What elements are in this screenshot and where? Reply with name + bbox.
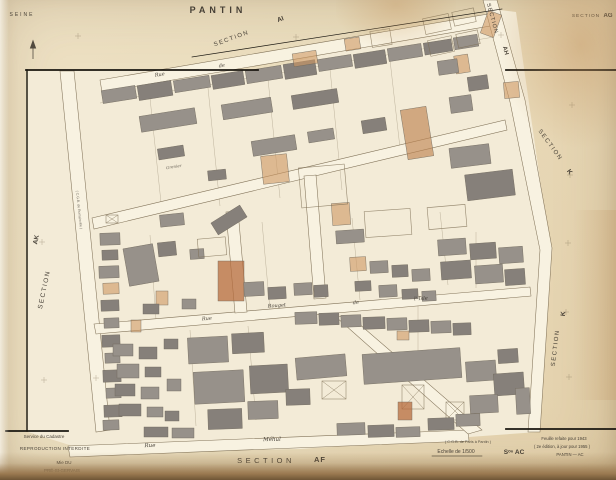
street-rouget-word-3: de [353, 300, 360, 306]
section-ag-code: AG [604, 13, 613, 19]
street-rouget-word-1: Rue [201, 316, 212, 323]
building [147, 407, 163, 417]
building [143, 304, 159, 314]
building [295, 312, 317, 325]
building [117, 364, 139, 378]
building [187, 336, 228, 364]
building [104, 318, 119, 329]
building [119, 404, 141, 416]
building [164, 339, 178, 349]
building [392, 265, 409, 278]
building [319, 313, 339, 326]
street-mehul-word-1: Rue [143, 443, 156, 449]
section-ai-code: AI [276, 15, 285, 24]
building [103, 420, 119, 431]
building [102, 250, 118, 261]
building [437, 238, 466, 256]
building [248, 400, 279, 419]
adjacent-commune-2: PRÉ-St-GERVAIS [44, 467, 80, 473]
section-ac-ref: Sᵒⁿ AC [504, 449, 525, 456]
building [398, 402, 412, 420]
building [190, 249, 205, 260]
building [409, 320, 429, 333]
section-ag-label: SECTION [572, 13, 600, 19]
cadastre-service-note: Service du Cadastre [24, 434, 65, 439]
building [453, 323, 471, 336]
building [344, 37, 361, 51]
title: PANTIN [190, 5, 247, 15]
building [261, 154, 290, 185]
street-mehul-word-2: Méhul [262, 436, 281, 443]
building [208, 408, 243, 429]
building [193, 370, 245, 405]
building [286, 389, 311, 406]
building [368, 425, 394, 438]
building [100, 233, 120, 246]
street-top-word-2: de [218, 63, 225, 70]
building [515, 388, 530, 415]
section-ai-label: SECTION [213, 30, 250, 48]
building [115, 384, 135, 396]
building [314, 285, 329, 298]
building [355, 281, 372, 292]
building [139, 347, 157, 359]
building [498, 246, 523, 264]
building [172, 428, 194, 438]
cadastral-map-sheet: SEINEPANTINSECTIONAGSECTIONAISECTIONAHSE… [0, 0, 616, 480]
north-arrow-head [31, 41, 36, 48]
reproduction-note: REPRODUCTION INTERDITE [20, 446, 90, 451]
building [123, 244, 159, 287]
building [141, 387, 159, 399]
building [295, 354, 347, 380]
building [145, 367, 161, 377]
building [396, 427, 420, 438]
section-k-upper-label: SECTION [536, 129, 563, 163]
building [504, 268, 525, 285]
building [244, 281, 265, 296]
building [156, 291, 168, 305]
building [503, 81, 519, 98]
edition-note-3: PANTIN — AC [556, 452, 583, 457]
building [412, 269, 431, 282]
tram-note-bottom: ( C.G.B. de Paris à Pantin ) [445, 440, 492, 444]
building [465, 169, 516, 201]
building [208, 169, 227, 181]
building [370, 261, 389, 274]
building [103, 283, 119, 295]
building [165, 411, 179, 421]
north-arrow [31, 41, 36, 59]
building [470, 394, 499, 413]
scale-note: Echelle de 1/500 [437, 449, 474, 455]
building [467, 75, 489, 92]
building [182, 299, 196, 309]
section-af-label: SECTION [237, 456, 295, 465]
building [350, 257, 367, 272]
building [465, 360, 496, 382]
map-svg: SEINEPANTINSECTIONAGSECTIONAISECTIONAHSE… [0, 0, 616, 480]
building [387, 318, 407, 331]
building [379, 285, 398, 298]
building [113, 344, 133, 356]
building [131, 320, 141, 332]
building [336, 229, 365, 244]
building [218, 261, 244, 301]
section-k-lower-label: SECTION [551, 329, 561, 367]
edition-note-2: ( 2e édition, à jour pour 1955 ) [534, 444, 591, 449]
building [231, 332, 264, 354]
building [469, 242, 496, 260]
street-rouget-word-4: l' Isle [414, 296, 428, 303]
building [337, 423, 365, 436]
building [498, 348, 519, 363]
building [440, 260, 471, 280]
building [363, 317, 385, 330]
building [268, 287, 287, 300]
adjacent-commune-1: Mie DU [56, 460, 71, 465]
section-af-code: AF [314, 455, 326, 464]
building [249, 364, 288, 394]
building [159, 213, 184, 227]
building [144, 427, 168, 437]
building [99, 266, 119, 279]
edition-note-1: Feuille refaite pour 1943 [541, 436, 587, 441]
building [157, 241, 176, 257]
building [331, 202, 350, 225]
building [167, 379, 181, 391]
building [428, 418, 454, 431]
building [456, 414, 480, 427]
building [294, 283, 313, 296]
building [431, 321, 451, 334]
building [101, 300, 119, 312]
building [449, 95, 473, 114]
building [341, 315, 361, 328]
dept-label: SEINE [9, 12, 34, 18]
building [474, 264, 503, 284]
building [437, 59, 459, 76]
building [397, 331, 409, 340]
